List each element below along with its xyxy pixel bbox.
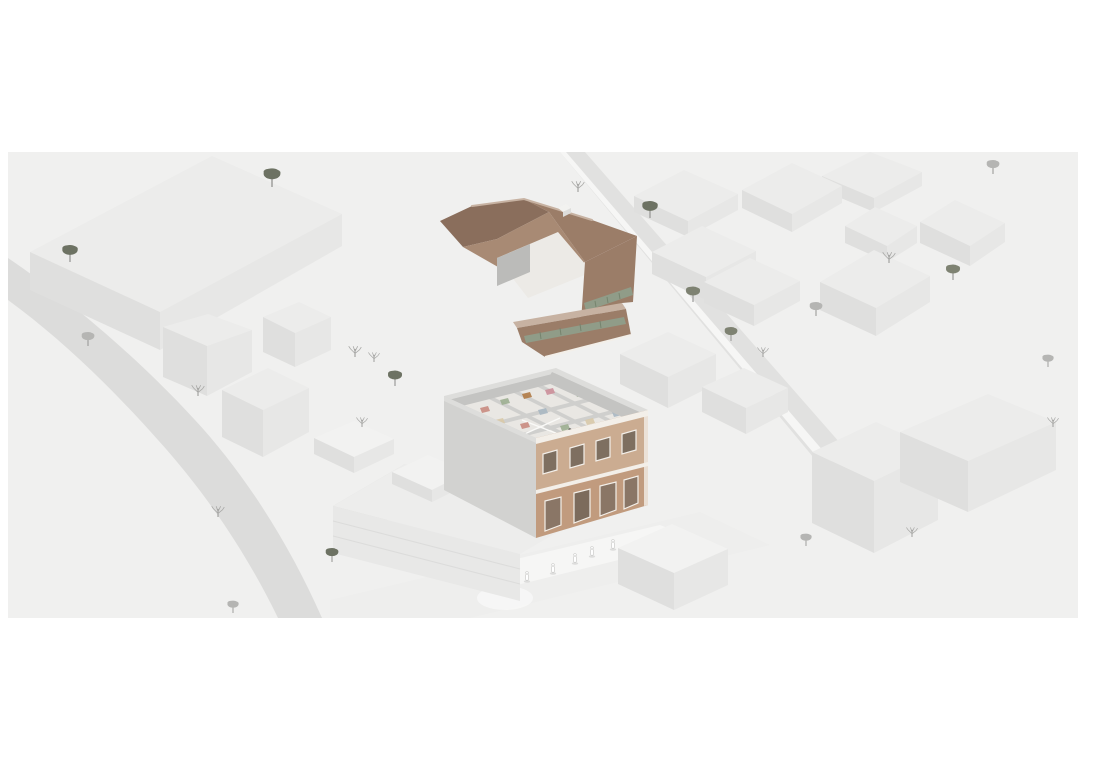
- site-illustration: [0, 0, 1100, 778]
- illustration-page: [0, 0, 1100, 778]
